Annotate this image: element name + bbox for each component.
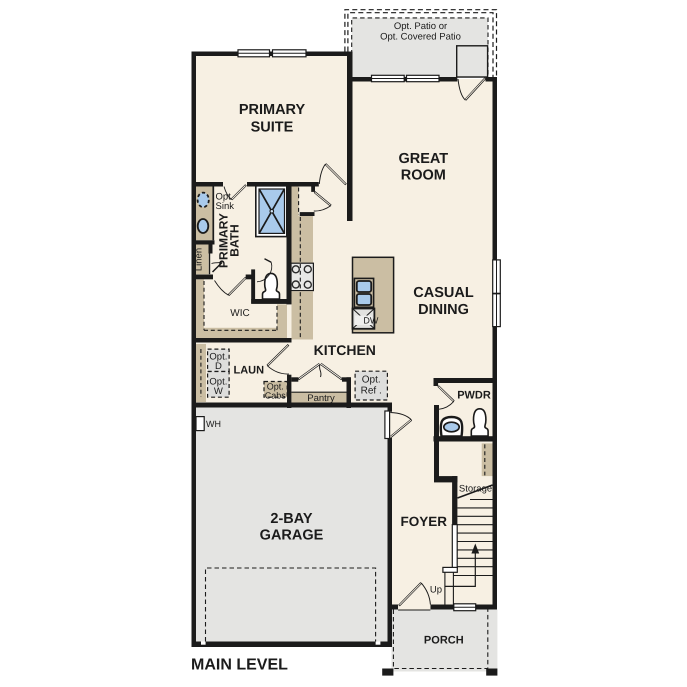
svg-text:SUITE: SUITE (251, 120, 294, 136)
svg-text:PRIMARY: PRIMARY (239, 102, 306, 118)
svg-text:KITCHEN: KITCHEN (314, 342, 376, 358)
svg-text:W: W (214, 386, 223, 397)
svg-text:2-BAY: 2-BAY (270, 511, 313, 527)
svg-text:WIC: WIC (230, 308, 249, 319)
svg-text:DW: DW (363, 316, 378, 326)
svg-text:ROOM: ROOM (401, 168, 446, 184)
svg-text:Pantry: Pantry (307, 393, 335, 404)
svg-text:WH: WH (206, 419, 221, 429)
svg-text:Cabs: Cabs (265, 390, 287, 400)
svg-text:GREAT: GREAT (398, 151, 448, 167)
svg-text:Opt.: Opt. (362, 375, 381, 386)
svg-text:Ref .: Ref . (361, 386, 382, 397)
svg-text:Sink: Sink (216, 201, 235, 212)
svg-text:PORCH: PORCH (424, 635, 464, 647)
svg-text:BATH: BATH (228, 224, 242, 256)
svg-text:PWDR: PWDR (457, 390, 491, 402)
svg-text:Opt. Covered Patio: Opt. Covered Patio (380, 32, 461, 43)
svg-text:CASUAL: CASUAL (413, 285, 474, 301)
svg-text:GARAGE: GARAGE (260, 528, 324, 544)
svg-text:DINING: DINING (418, 302, 469, 318)
svg-text:LAUN: LAUN (234, 365, 265, 377)
svg-text:FOYER: FOYER (401, 514, 448, 529)
svg-text:Storage: Storage (459, 483, 492, 494)
svg-text:MAIN LEVEL: MAIN LEVEL (191, 657, 288, 674)
svg-text:Opt. Patio or: Opt. Patio or (394, 21, 447, 32)
svg-text:Up: Up (430, 585, 442, 596)
svg-text:D: D (215, 361, 222, 372)
